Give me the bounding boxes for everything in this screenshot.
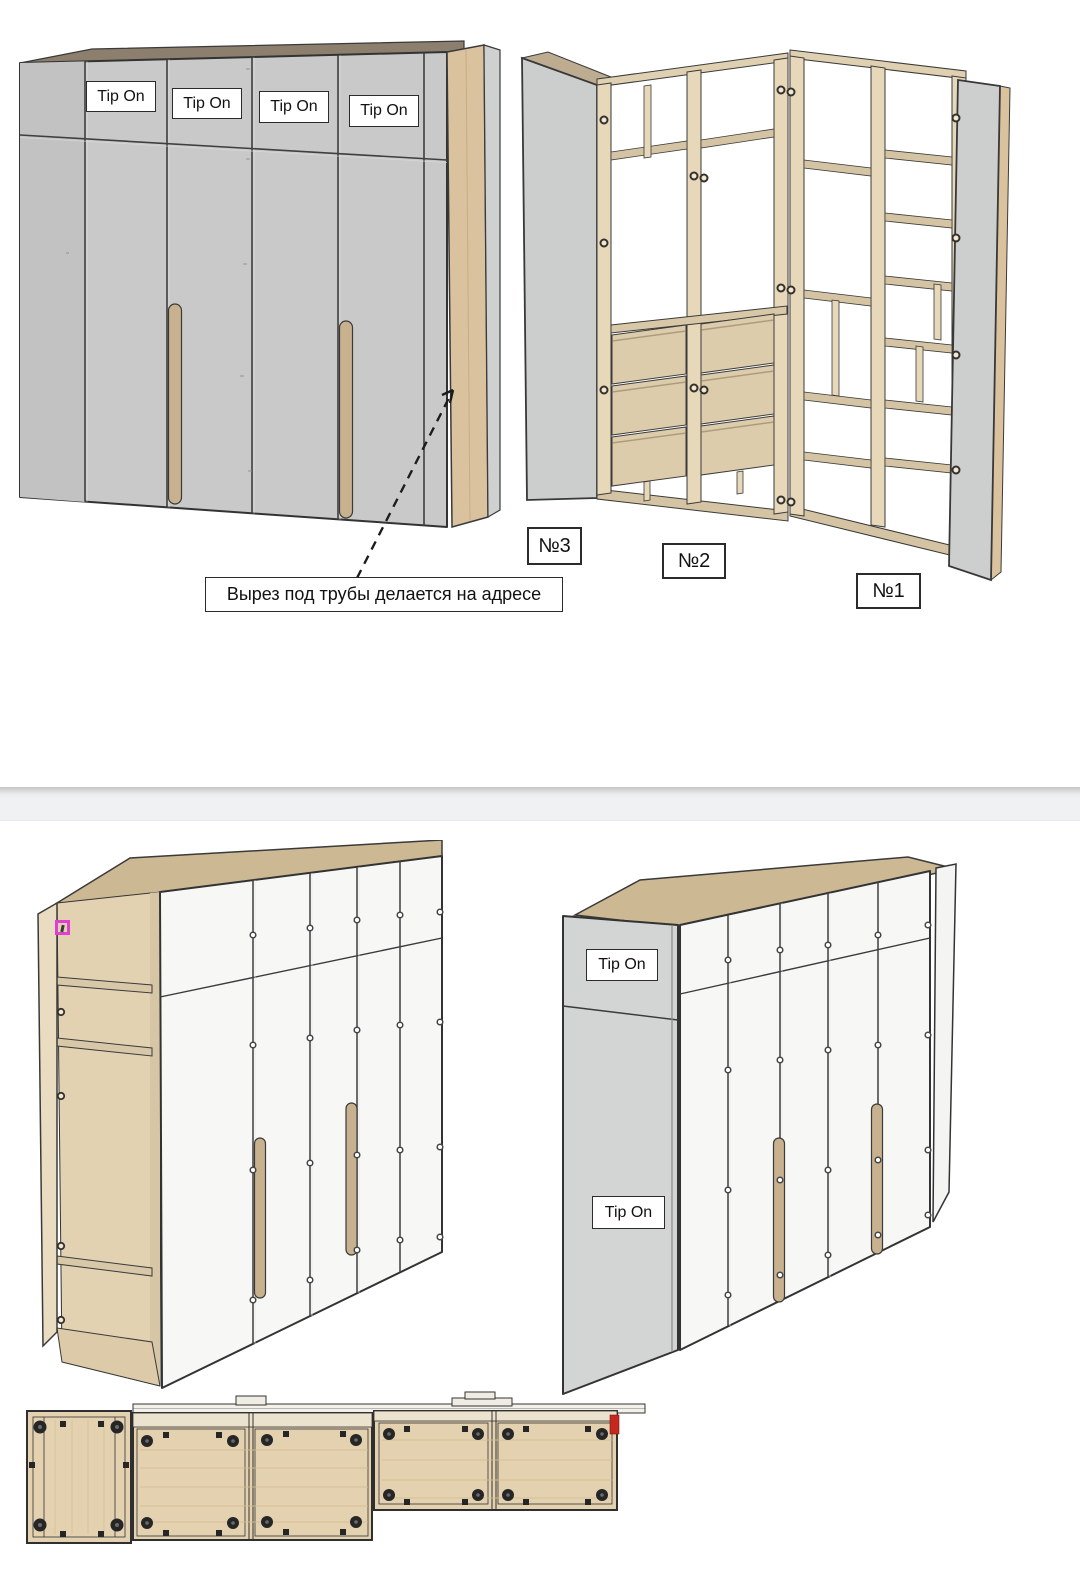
wardrobe-door-front — [160, 856, 443, 1388]
open-bay-interior — [38, 892, 160, 1386]
pink-selection-marker — [55, 920, 70, 935]
page-divider — [0, 787, 1080, 821]
wardrobe-right-edge-panel — [933, 864, 956, 1222]
plan-red-mark — [610, 1415, 619, 1434]
plan-middle-panels — [133, 1413, 372, 1540]
tip-on-label: Tip On — [349, 95, 419, 127]
plan-left-panel — [27, 1411, 131, 1543]
tip-on-label: Tip On — [592, 1196, 665, 1229]
wardrobe-3d-gray-side-view — [555, 845, 975, 1415]
unit-number-label-2: №2 — [662, 543, 726, 579]
cabinet-plan-top-view — [20, 1388, 660, 1553]
document-canvas: Tip On Tip On Tip On Tip On Вырез под тр… — [0, 0, 1080, 1589]
closed-wardrobe-side-edge — [447, 45, 500, 527]
pipe-cutout-callout: Вырез под трубы делается на адресе — [205, 577, 563, 612]
open-wardrobe-interior-view — [515, 40, 1045, 600]
tip-on-label: Tip On — [259, 91, 329, 123]
wardrobe-door-front — [680, 871, 931, 1350]
unit-number-label-1: №1 — [856, 573, 921, 609]
wardrobe-unit1-carcass — [790, 50, 966, 559]
tip-on-label: Tip On — [86, 81, 156, 112]
open-wardrobe-right-side-panel — [949, 80, 1010, 580]
pink-marker-glyph — [60, 925, 64, 932]
plan-top-rail — [133, 1392, 645, 1413]
wardrobe-3d-open-bay-view — [25, 840, 455, 1410]
wardrobe-gray-side-face — [563, 916, 678, 1394]
tip-on-label: Tip On — [172, 88, 242, 119]
tip-on-label: Tip On — [586, 949, 658, 981]
unit-number-label-3: №3 — [527, 527, 582, 565]
plan-right-panels — [374, 1411, 619, 1510]
